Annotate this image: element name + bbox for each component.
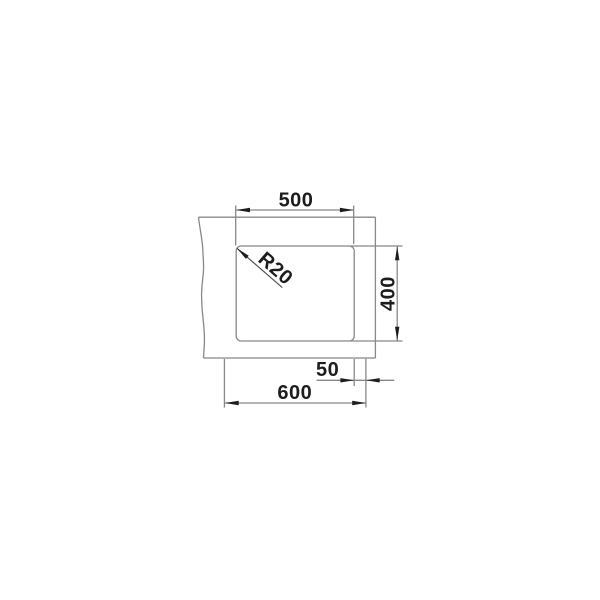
svg-text:400: 400: [377, 276, 399, 311]
svg-text:50: 50: [316, 359, 339, 381]
svg-text:600: 600: [277, 382, 312, 404]
svg-text:500: 500: [279, 189, 314, 211]
